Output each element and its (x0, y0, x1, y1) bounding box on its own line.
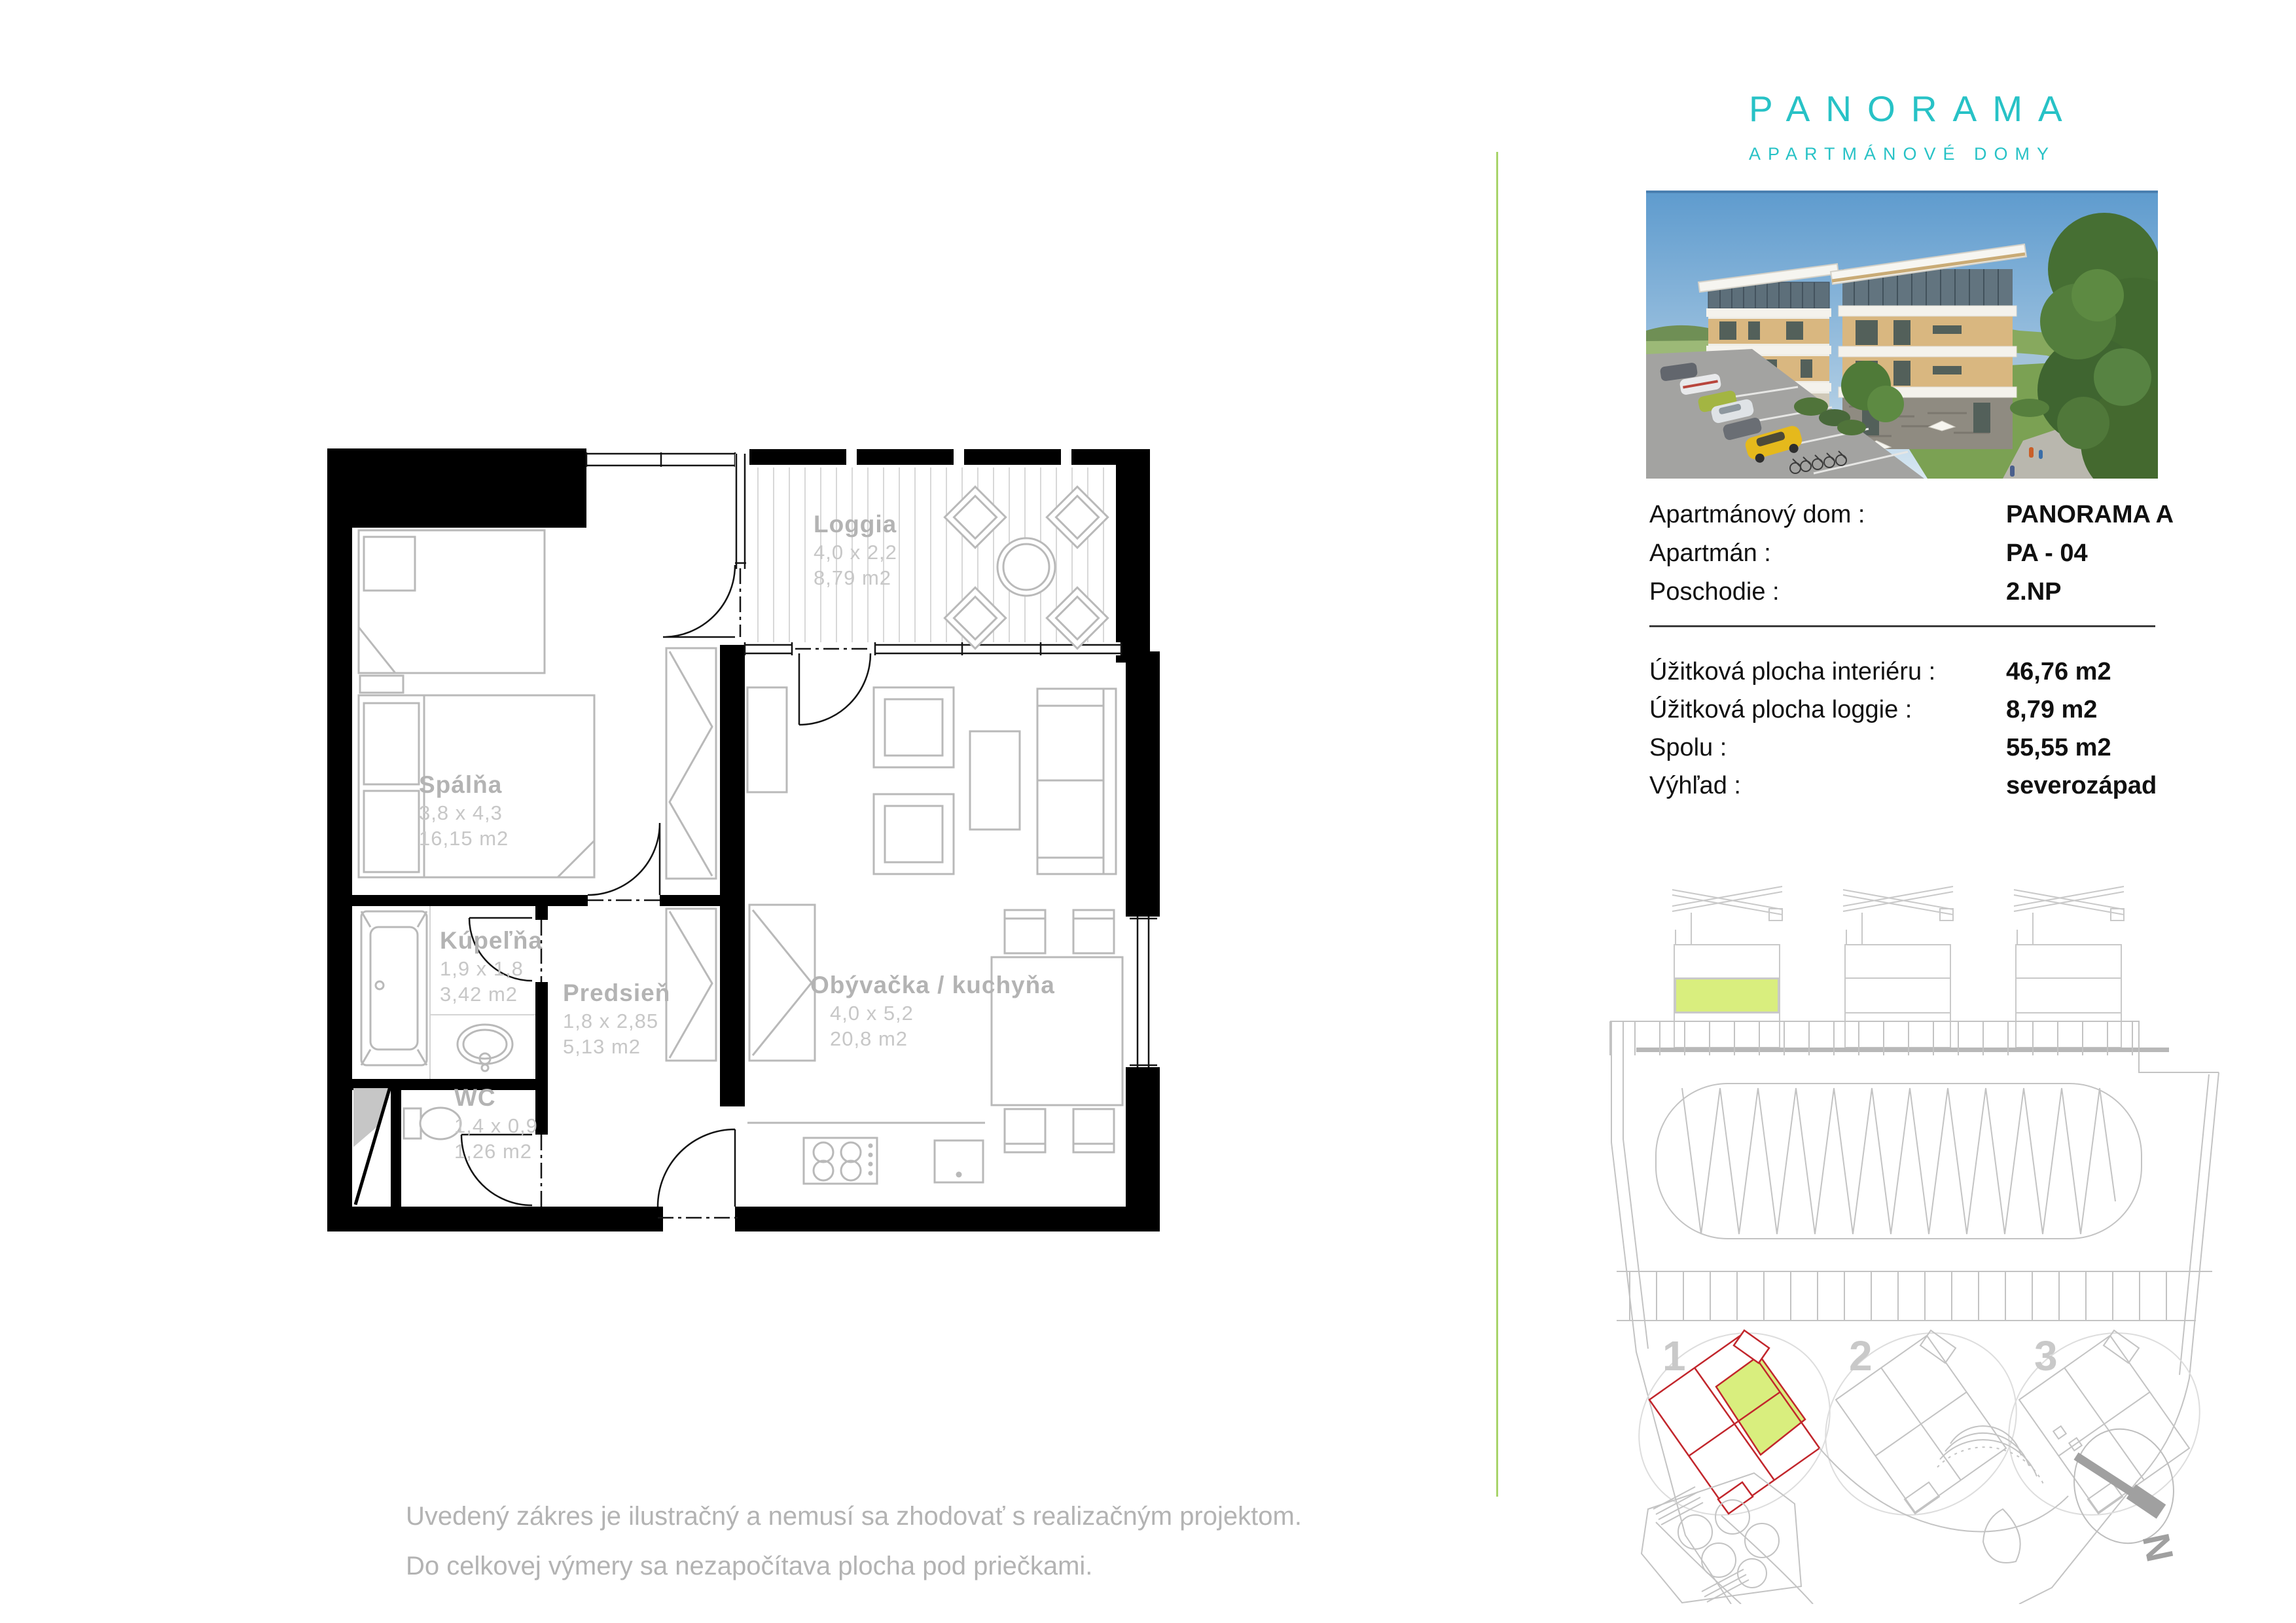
playground (1641, 1473, 1801, 1603)
room-label-wc: WC 1,4 x 0,9 1,26 m2 (454, 1085, 538, 1163)
info-separator (1649, 625, 2155, 627)
logo-subtitle: APARTMÁNOVÉ DOMY (1749, 144, 2078, 164)
room-label-bathroom: Kúpeľňa 1,9 x 1,8 3,42 m2 (440, 928, 543, 1006)
site-landscape-blobs (1604, 1296, 2232, 1552)
bedroom-furniture (359, 530, 716, 879)
info-row-interior-area: Úžitková plocha interiéru : 46,76 m2 (1649, 658, 2160, 691)
loggia-furniture (944, 486, 1107, 648)
site-building-number-3: 3 (2034, 1332, 2058, 1379)
brochure-page: Loggia 4,0 x 2,2 8,79 m2 Spálňa 3,8 x 4,… (0, 0, 2296, 1623)
site-building-number-2: 2 (1849, 1332, 1873, 1379)
site-plan: 1 2 3 N (1597, 1012, 2232, 1604)
parking-row-middle (1617, 1271, 2212, 1321)
north-label: N (2134, 1530, 2181, 1565)
building-photo (1646, 191, 2158, 479)
info-row-building: Apartmánový dom : PANORAMA A (1649, 501, 2160, 534)
footer-disclaimer: Uvedený zákres je ilustračný a nemusí sa… (406, 1491, 1302, 1591)
parking-row-top (1610, 1021, 2132, 1055)
door-openings (541, 568, 872, 1218)
highlighted-floor (1676, 979, 1778, 1012)
info-row-view: Výhľad : severozápad (1649, 772, 2160, 805)
photo-building-main (1831, 244, 2026, 451)
footer-line-1: Uvedený zákres je ilustračný a nemusí sa… (406, 1491, 1302, 1541)
room-label-loggia: Loggia 4,0 x 2,2 8,79 m2 (814, 512, 897, 589)
logo-title: PANORAMA (1749, 88, 2078, 130)
utility-shaft (353, 1087, 390, 1205)
info-row-apartment: Apartmán : PA - 04 (1649, 539, 2160, 572)
hedge-band (1656, 1084, 2142, 1239)
section-divider (1496, 152, 1498, 1497)
info-row-total-area: Spolu : 55,55 m2 (1649, 734, 2160, 767)
room-label-bedroom: Spálňa 3,8 x 4,3 16,15 m2 (419, 773, 509, 850)
logo: PANORAMA APARTMÁNOVÉ DOMY (1749, 88, 2078, 164)
footer-line-2: Do celkovej výmery sa nezapočítava ploch… (406, 1541, 1302, 1591)
living-furniture (747, 687, 1122, 1184)
room-label-living: Obývačka / kuchyňa 4,0 x 5,2 20,8 m2 (810, 973, 1055, 1050)
room-label-hall: Predsieň 1,8 x 2,85 5,13 m2 (563, 981, 670, 1058)
info-row-floor: Poschodie : 2.NP (1649, 578, 2160, 611)
info-row-loggia-area: Úžitková plocha loggie : 8,79 m2 (1649, 696, 2160, 729)
site-building-number-1: 1 (1662, 1332, 1686, 1379)
